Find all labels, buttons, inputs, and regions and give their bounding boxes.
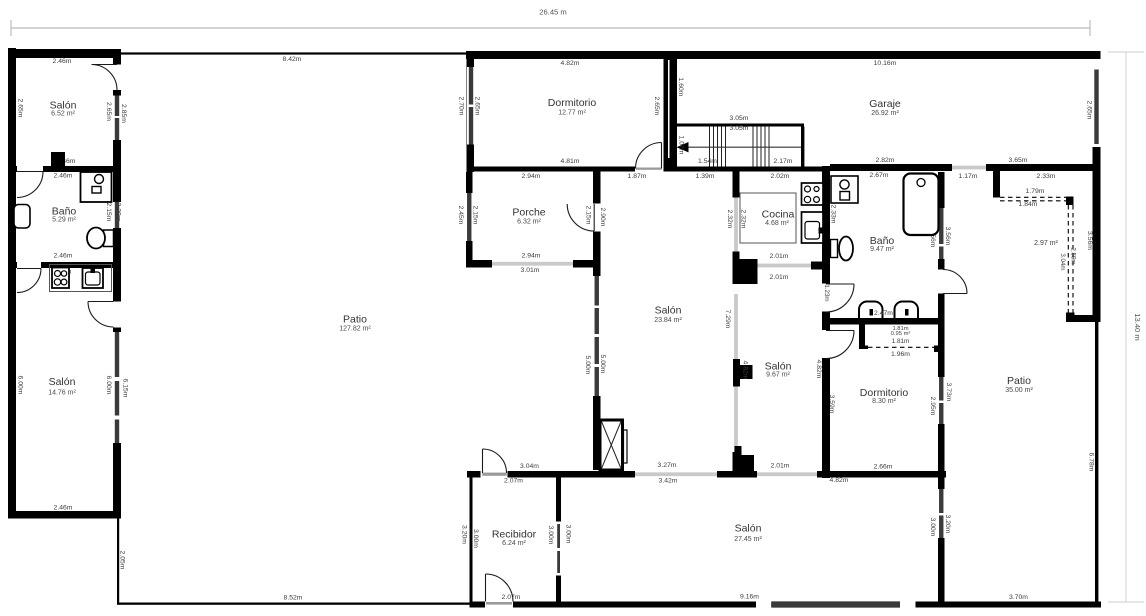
svg-text:6.00m: 6.00m — [105, 376, 112, 395]
svg-text:2.15m: 2.15m — [585, 206, 592, 225]
svg-text:2.05m: 2.05m — [119, 551, 126, 570]
svg-text:6.78m: 6.78m — [1088, 453, 1095, 472]
svg-text:2.07m: 2.07m — [504, 478, 523, 485]
svg-text:4.68 m²: 4.68 m² — [765, 220, 789, 227]
svg-text:Salón: Salón — [735, 523, 762, 535]
svg-text:4.82m: 4.82m — [742, 361, 749, 380]
svg-text:2.33m: 2.33m — [1037, 173, 1056, 180]
svg-text:127.82 m²: 127.82 m² — [339, 326, 371, 333]
svg-text:2.15m: 2.15m — [472, 206, 479, 225]
svg-text:7.29m: 7.29m — [724, 310, 731, 329]
svg-text:8.52m: 8.52m — [284, 595, 303, 602]
svg-text:2.65m: 2.65m — [1086, 101, 1093, 120]
svg-text:2.46m: 2.46m — [54, 505, 73, 512]
svg-text:Cocina: Cocina — [762, 209, 795, 221]
svg-text:4.81m: 4.81m — [561, 158, 580, 165]
svg-text:4.82m: 4.82m — [815, 360, 822, 379]
svg-text:3.42m: 3.42m — [659, 478, 678, 485]
svg-text:2.65m: 2.65m — [474, 97, 481, 116]
svg-text:2.47m: 2.47m — [874, 310, 893, 317]
svg-text:2.70m: 2.70m — [458, 97, 465, 116]
svg-text:2.65m: 2.65m — [17, 99, 24, 118]
svg-text:6.52 m²: 6.52 m² — [51, 111, 75, 118]
svg-text:2.65m: 2.65m — [105, 102, 112, 121]
svg-text:Garaje: Garaje — [869, 98, 901, 110]
svg-text:Dormitorio: Dormitorio — [548, 97, 597, 109]
svg-text:26.45 m: 26.45 m — [539, 8, 566, 17]
svg-text:3.56m: 3.56m — [1086, 231, 1093, 250]
svg-text:1.87m: 1.87m — [628, 173, 647, 180]
svg-text:2.59m: 2.59m — [1070, 247, 1077, 264]
svg-text:5.29 m²: 5.29 m² — [52, 217, 76, 224]
svg-text:2.95m: 2.95m — [929, 397, 936, 416]
svg-text:2.97 m²: 2.97 m² — [1034, 240, 1058, 247]
svg-text:3.00m: 3.00m — [929, 518, 936, 537]
svg-text:1.07m: 1.07m — [678, 136, 685, 155]
svg-text:Patio: Patio — [343, 314, 367, 326]
svg-text:1.39m: 1.39m — [696, 173, 715, 180]
svg-text:3.56m: 3.56m — [944, 227, 951, 246]
svg-text:13.40 m: 13.40 m — [1133, 313, 1142, 340]
svg-text:9.47 m²: 9.47 m² — [870, 246, 894, 253]
svg-text:1.96m: 1.96m — [891, 351, 910, 358]
svg-text:2.94m: 2.94m — [522, 173, 541, 180]
svg-text:6.00m: 6.00m — [17, 376, 24, 395]
svg-text:3.20m: 3.20m — [944, 515, 951, 534]
svg-text:5.00m: 5.00m — [584, 356, 591, 375]
svg-text:2.33m: 2.33m — [830, 205, 837, 224]
svg-text:3.27m: 3.27m — [658, 462, 677, 469]
svg-text:3.00m: 3.00m — [472, 529, 479, 548]
svg-text:10.16m: 10.16m — [874, 60, 897, 67]
svg-text:0.95 m²: 0.95 m² — [891, 331, 911, 337]
svg-text:3.04m: 3.04m — [1059, 253, 1066, 270]
svg-text:3.59m: 3.59m — [828, 395, 835, 414]
svg-text:3.01m: 3.01m — [521, 267, 540, 274]
svg-text:2.32m: 2.32m — [740, 210, 747, 229]
svg-text:1.79m: 1.79m — [1026, 188, 1045, 195]
svg-text:4.82m: 4.82m — [561, 60, 580, 67]
svg-text:3.20m: 3.20m — [461, 525, 468, 544]
svg-text:3.65m: 3.65m — [1009, 157, 1028, 164]
svg-text:2.02m: 2.02m — [771, 173, 790, 180]
svg-text:2.01m: 2.01m — [770, 274, 789, 281]
svg-text:2.67m: 2.67m — [870, 172, 889, 179]
svg-text:2.01m: 2.01m — [771, 463, 790, 470]
svg-text:2.90m: 2.90m — [599, 208, 606, 227]
svg-text:Salón: Salón — [49, 376, 76, 388]
svg-text:3.00m: 3.00m — [547, 526, 554, 545]
svg-text:3.00m: 3.00m — [565, 525, 572, 544]
svg-text:2.46m: 2.46m — [54, 253, 73, 260]
svg-text:Salón: Salón — [655, 305, 682, 317]
svg-text:5.00m: 5.00m — [599, 355, 606, 374]
svg-text:2.65m: 2.65m — [653, 97, 660, 116]
svg-text:2.94m: 2.94m — [522, 253, 541, 260]
svg-text:6.24 m²: 6.24 m² — [502, 540, 526, 547]
svg-text:2.46m: 2.46m — [54, 173, 73, 180]
svg-text:2.82m: 2.82m — [876, 157, 895, 164]
svg-text:3.05m: 3.05m — [730, 115, 749, 122]
svg-text:6.15m: 6.15m — [122, 379, 129, 398]
svg-text:3.73m: 3.73m — [945, 383, 952, 402]
svg-text:2.30m: 2.30m — [115, 203, 122, 222]
svg-text:2.01m: 2.01m — [770, 253, 789, 260]
svg-text:23.84 m²: 23.84 m² — [654, 317, 682, 324]
svg-text:1.54m: 1.54m — [698, 158, 717, 165]
svg-text:2.66m: 2.66m — [874, 464, 893, 471]
svg-text:Patio: Patio — [1007, 375, 1031, 387]
svg-text:8.30 m²: 8.30 m² — [872, 398, 896, 405]
svg-text:6.32 m²: 6.32 m² — [517, 219, 541, 226]
svg-text:2.45m: 2.45m — [457, 206, 464, 225]
svg-text:9.16m: 9.16m — [740, 594, 759, 601]
svg-text:3.70m: 3.70m — [1009, 594, 1028, 601]
svg-text:2.32m: 2.32m — [726, 210, 733, 229]
svg-text:2.07m: 2.07m — [502, 594, 521, 601]
svg-text:2.15m: 2.15m — [105, 203, 112, 222]
svg-text:Porche: Porche — [512, 207, 545, 219]
svg-text:9.67 m²: 9.67 m² — [766, 372, 790, 379]
svg-text:1.60m: 1.60m — [677, 78, 684, 97]
svg-text:35.00 m²: 35.00 m² — [1005, 387, 1033, 394]
svg-text:2.46m: 2.46m — [53, 58, 72, 65]
svg-text:26.92 m²: 26.92 m² — [871, 110, 899, 117]
svg-text:1.81m: 1.81m — [892, 338, 910, 345]
svg-text:1.84m: 1.84m — [1019, 201, 1038, 208]
svg-text:14.76 m²: 14.76 m² — [48, 390, 76, 397]
svg-text:2.17m: 2.17m — [774, 158, 793, 165]
svg-text:4.82m: 4.82m — [830, 477, 849, 484]
svg-text:27.45 m²: 27.45 m² — [734, 536, 762, 543]
svg-text:3.05m: 3.05m — [730, 125, 749, 132]
svg-text:3.04m: 3.04m — [520, 463, 539, 470]
svg-text:1.17m: 1.17m — [959, 173, 978, 180]
svg-text:2.85m: 2.85m — [120, 104, 127, 123]
svg-text:8.42m: 8.42m — [283, 56, 302, 63]
svg-text:12.77 m²: 12.77 m² — [558, 110, 586, 117]
svg-text:1.23m: 1.23m — [823, 284, 830, 301]
svg-text:Recibidor: Recibidor — [492, 529, 537, 541]
